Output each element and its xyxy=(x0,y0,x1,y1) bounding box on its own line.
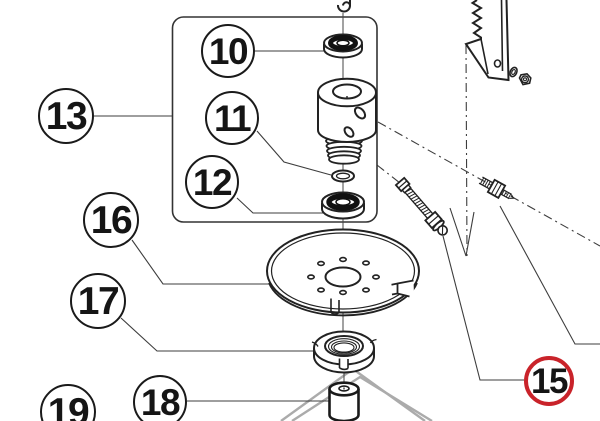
short-bolt xyxy=(477,174,517,204)
cover-plate xyxy=(267,230,419,316)
callout-12: 12 xyxy=(185,155,239,209)
o-ring xyxy=(332,171,354,182)
hook-part xyxy=(338,0,350,12)
callout-17: 17 xyxy=(70,273,126,329)
blade-nut xyxy=(520,74,531,85)
callout-15: 15 xyxy=(524,356,574,406)
callout-16: 16 xyxy=(83,192,139,248)
bearing-lower xyxy=(322,193,364,219)
callout-11: 11 xyxy=(205,91,259,145)
spindle-cylinder xyxy=(318,79,376,164)
long-bolt xyxy=(395,177,451,238)
blade-washer xyxy=(509,66,519,77)
callout-10: 10 xyxy=(201,24,255,78)
saw-blade xyxy=(466,0,509,80)
spacer-cylinder xyxy=(330,383,359,421)
callout-13: 13 xyxy=(38,88,94,144)
callout-18: 18 xyxy=(133,375,187,421)
bearing-upper xyxy=(324,35,362,58)
lock-nut xyxy=(312,332,377,373)
parts-diagram: 101112131516171819 xyxy=(0,0,600,421)
